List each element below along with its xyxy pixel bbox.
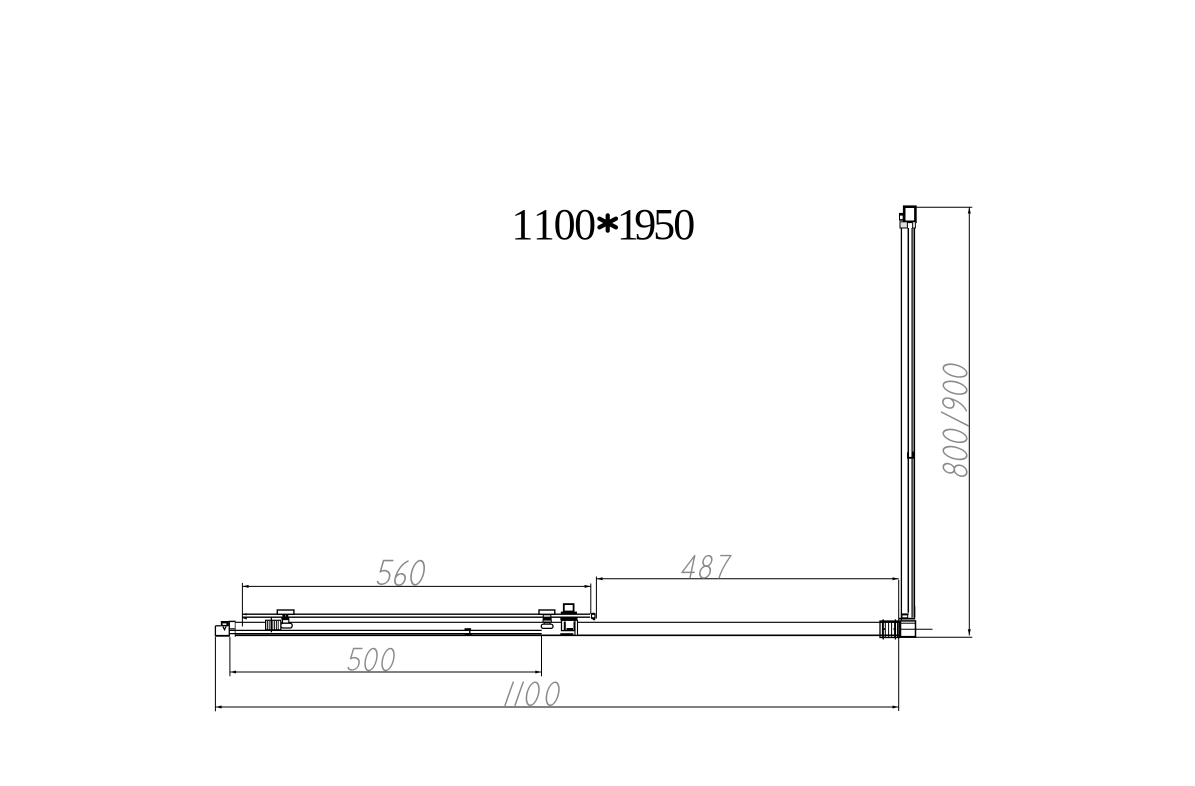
svg-text:0: 0: [673, 200, 695, 249]
svg-text:1: 1: [511, 200, 533, 249]
svg-text:5: 5: [653, 200, 675, 249]
svg-text:1: 1: [533, 200, 555, 249]
svg-text:0: 0: [574, 200, 596, 249]
svg-text:0: 0: [554, 200, 576, 249]
